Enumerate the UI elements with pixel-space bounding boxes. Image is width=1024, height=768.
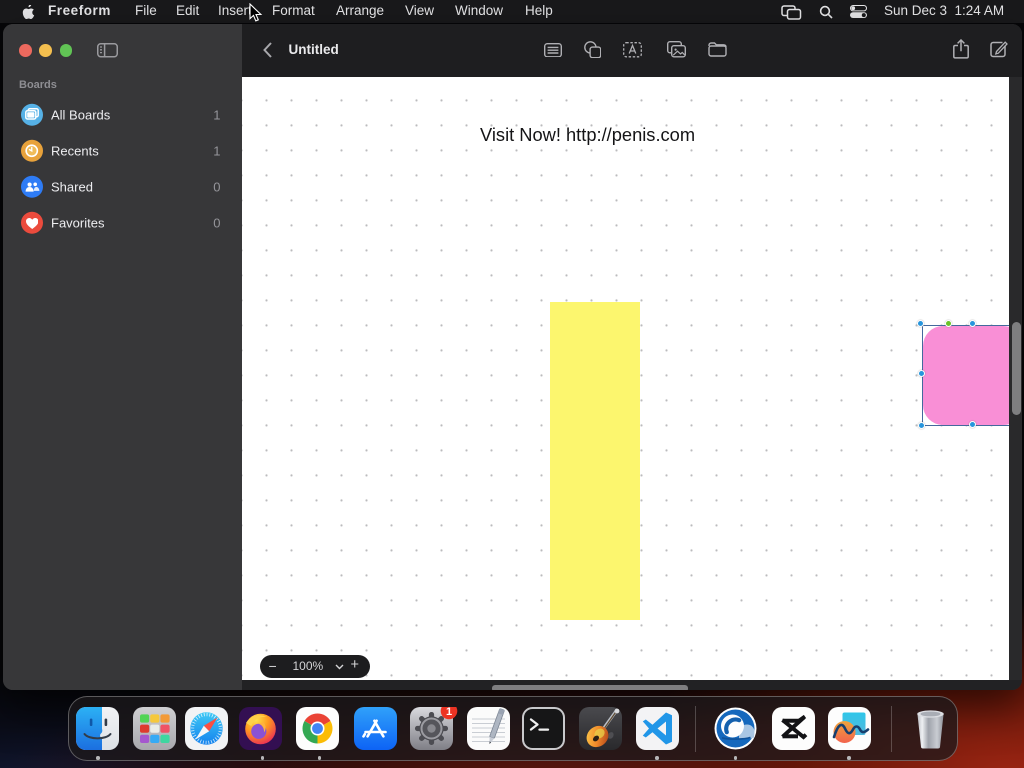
svg-text:1: 1: [446, 707, 452, 718]
